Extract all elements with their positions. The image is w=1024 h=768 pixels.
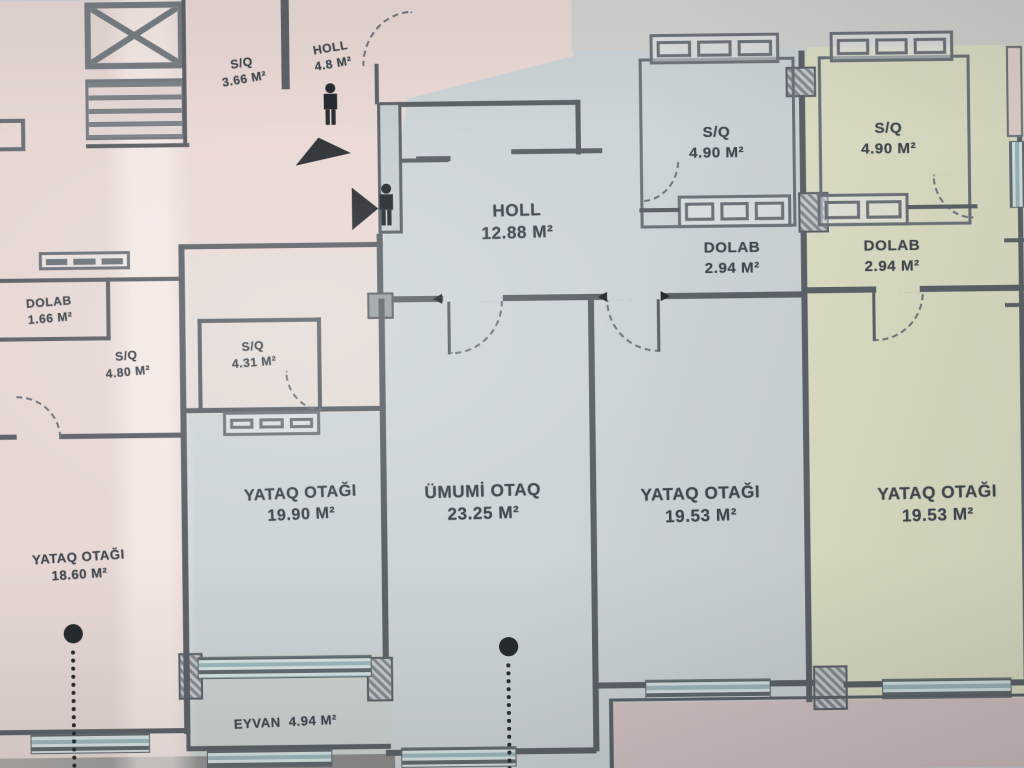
room-label-sq-490-left: S/Q4.90 M² <box>689 123 744 163</box>
wall-segment <box>511 148 602 154</box>
wall-segment <box>907 204 978 209</box>
zone-top-right-paper <box>571 0 1024 50</box>
floorplan-photo: S/Q3.66 M² HOLL4.8 M² HOLL12.88 M² S/Q4.… <box>0 0 1024 768</box>
cabinet-cell <box>685 202 714 221</box>
cabinet-cell <box>697 40 732 57</box>
wall-segment <box>1004 238 1024 242</box>
wall-segment <box>0 435 17 440</box>
cabinet-cell <box>260 418 284 428</box>
room-label-yataq-1953-center: YATAQ OTAĞI19.53 M² <box>640 481 761 529</box>
wall-segment <box>661 291 805 299</box>
window-strip <box>207 749 333 768</box>
room-label-umumi-otaq: ÜMUMİ OTAQ23.25 M² <box>424 479 542 527</box>
cabinet-cell <box>657 41 692 58</box>
wardrobe-symbol <box>678 194 792 228</box>
shaft-box <box>1006 46 1023 137</box>
entry-arrow-right-icon <box>352 187 379 230</box>
elevator-shaft <box>84 1 184 69</box>
wall-segment <box>399 100 579 107</box>
room-label-yataq-1953-right: YATAQ OTAĞI19.53 M² <box>877 480 998 528</box>
room-label-sq-431: S/Q4.31 M² <box>230 337 277 372</box>
wardrobe-symbol <box>817 193 908 226</box>
cabinet-cell <box>74 259 96 265</box>
door-stop-arrow <box>598 292 607 302</box>
wall-segment <box>106 278 111 341</box>
room-label-sq-480: S/Q4.80 M² <box>103 346 151 382</box>
plan-canvas: S/Q3.66 M² HOLL4.8 M² HOLL12.88 M² S/Q4.… <box>0 0 1024 768</box>
door-leaf <box>872 293 876 342</box>
cabinet-cell <box>738 40 773 57</box>
room-label-dolab-right: DOLAB2.94 M² <box>863 236 920 276</box>
door-leaf <box>447 302 451 355</box>
wardrobe-symbol <box>223 411 320 436</box>
wall-segment <box>416 156 450 161</box>
wall-segment <box>281 0 290 89</box>
zone-entry-lobby <box>179 250 383 414</box>
wall-segment <box>1005 303 1024 307</box>
shaft-box <box>0 119 25 152</box>
cabinet-cell <box>46 259 68 265</box>
cabinet-cell <box>875 38 908 55</box>
room-label-holl-main: HOLL12.88 M² <box>480 199 553 246</box>
stairs <box>85 78 185 140</box>
cabinet-cell <box>720 202 749 221</box>
door-arc <box>450 301 503 354</box>
cabinet-cell <box>101 258 123 264</box>
wall-segment <box>805 286 876 293</box>
room-label-sq-490-right: S/Q4.90 M² <box>861 118 916 158</box>
room-label-yataq-1990: YATAQ OTAĞI19.90 M² <box>244 481 359 528</box>
door-arc <box>606 299 659 352</box>
cabinet-cell <box>914 38 947 55</box>
window-strip <box>30 733 150 755</box>
room-label-yataq-1860: YATAQ OTAĞI18.60 M² <box>32 546 127 586</box>
column-hatch <box>813 665 848 710</box>
cabinet-cell <box>230 419 254 429</box>
cabinet-cell <box>837 39 870 56</box>
cabinet-cell <box>825 201 861 220</box>
wall-segment <box>920 285 1024 292</box>
cabinet-cell <box>289 418 313 428</box>
room-label-dolab-166: DOLAB1.66 M² <box>26 293 74 328</box>
window-strip <box>401 746 517 768</box>
door-leaf <box>657 299 661 352</box>
cabinet-cell <box>866 200 902 219</box>
column-axis-dotted <box>506 663 511 768</box>
wall-segment <box>609 701 614 768</box>
door-stop-arrow <box>661 291 670 301</box>
window-strip <box>198 655 372 679</box>
window-strip <box>1009 141 1024 208</box>
person-icon <box>319 82 342 127</box>
room-label-dolab-left: DOLAB2.94 M² <box>704 238 761 278</box>
wall-segment <box>575 100 581 155</box>
vent-block-row <box>830 30 954 62</box>
vent-block-row <box>649 33 779 65</box>
elevator-x-icon <box>90 8 178 64</box>
wall-segment <box>374 64 379 105</box>
column-dot <box>499 637 518 656</box>
wall-segment <box>378 299 389 694</box>
door-stop-arrow <box>433 294 442 304</box>
wall-segment <box>639 208 680 213</box>
column-dot <box>64 624 83 643</box>
wardrobe-symbol <box>39 251 130 270</box>
cabinet-cell <box>755 202 784 221</box>
room-label-holl-small: HOLL4.8 M² <box>311 38 353 75</box>
